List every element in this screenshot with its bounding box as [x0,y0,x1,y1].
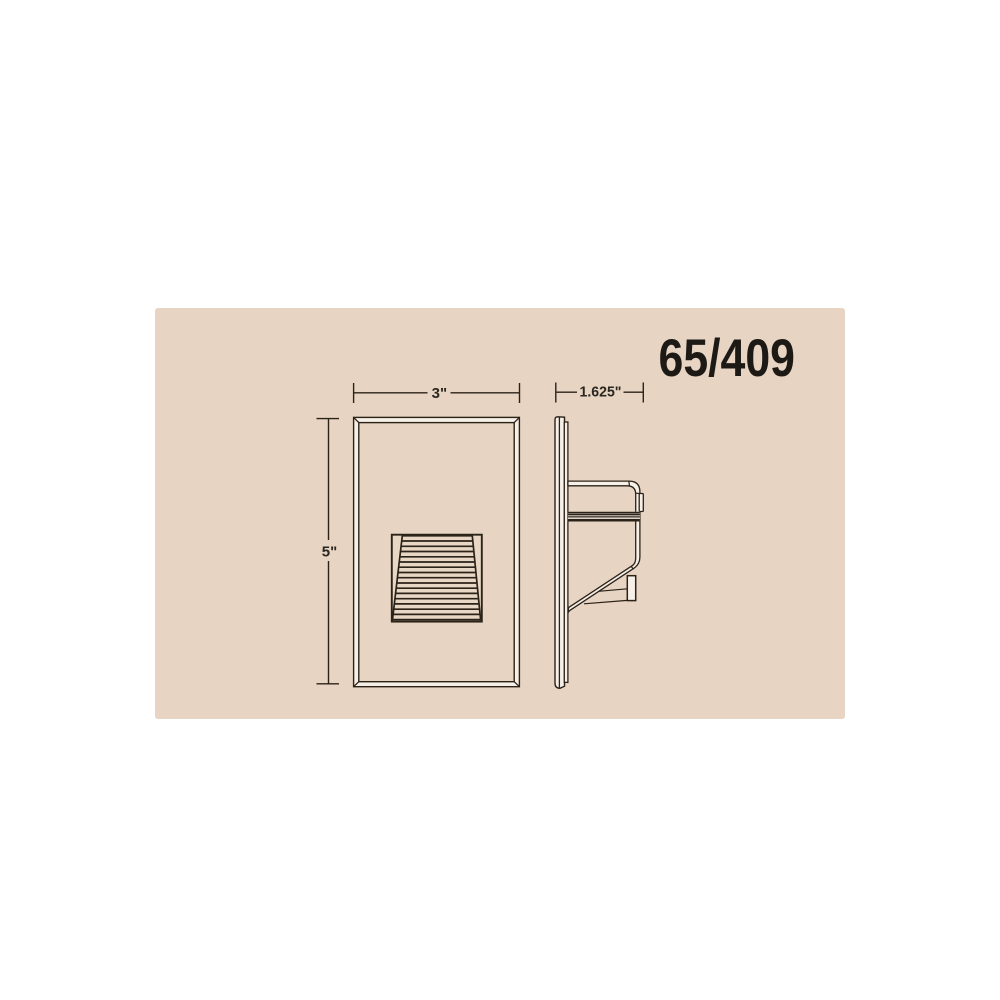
svg-text:3": 3" [432,385,447,402]
svg-text:1.625": 1.625" [580,383,622,400]
svg-text:5": 5" [322,543,337,560]
svg-text:65/409: 65/409 [659,329,796,388]
